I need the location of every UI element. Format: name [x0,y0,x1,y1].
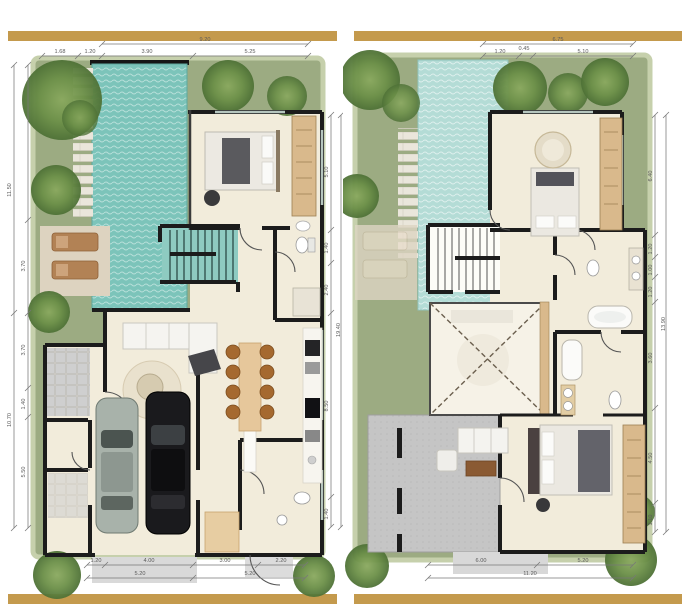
car-silver [96,398,138,533]
dim-label: 2.40 [324,285,330,296]
void-open-below [430,302,549,415]
dim-label: 3.60 [648,353,654,364]
dim-label: 5.20 [135,571,146,577]
bathtub [562,340,582,380]
dim-label: 10.70 [7,413,13,427]
dim-label: 19.40 [336,323,342,337]
dim-label: 3.70 [21,261,27,272]
dim-label: 3.00 [220,558,231,564]
headboard [528,428,540,494]
wardrobe [623,425,645,543]
sun-deck [40,226,110,296]
dim-label: 3.70 [21,345,27,356]
dim-label: 13.90 [661,317,667,331]
floor-plans-page: 1.68 1.20 3.90 5.25 9.20 1.20 4.00 3.00 … [0,0,686,606]
driveway-pavers [46,348,90,416]
dim-label: 1.20 [648,244,654,255]
sun-deck-below [355,225,417,300]
dim-label: 5.20 [245,571,256,577]
kitchen [303,328,322,483]
dim-label: 1.40 [21,399,27,410]
dim-label: 5.10 [324,167,330,178]
upper-floor-plan: 1.20 0.45 5.10 6.75 6.00 5.20 11.20 6.40… [343,0,686,606]
toilet [609,391,621,409]
dim-label: 1.00 [648,265,654,276]
dim-label: 3.90 [142,49,153,55]
sun-lounger [52,261,98,279]
dim-label: 1.10 [648,515,654,526]
dim-label: 1.20 [648,287,654,298]
dim-label: 6.75 [553,37,564,43]
ground-floor-plan: 1.68 1.20 3.90 5.25 9.20 1.20 4.00 3.00 … [0,0,343,606]
dim-label: 8.50 [324,401,330,412]
wardrobe [292,116,316,231]
dim-label: 11.20 [523,571,537,577]
dim-label: 1.40 [324,509,330,520]
dim-label: 5.10 [578,49,589,55]
dim-label: 1.20 [495,49,506,55]
staircase [162,228,238,284]
dim-label: 1.40 [324,243,330,254]
dim-label: 5.25 [245,49,256,55]
entry-mat [205,512,239,552]
dim-label: 6.40 [648,171,654,182]
dim-label: 5.20 [578,558,589,564]
dim-label: 1.20 [85,49,96,55]
dim-label: 6.00 [476,558,487,564]
dim-label: 1.20 [91,558,102,564]
car-black [146,392,190,534]
dim-label: 11.50 [7,183,13,197]
sun-lounger [52,233,98,251]
dim-label: 4.00 [144,558,155,564]
outdoor-armchair [437,450,457,471]
dim-label: 5.50 [21,467,27,478]
dim-label: 2.20 [276,558,287,564]
dim-label: 4.50 [648,453,654,464]
wardrobe [600,118,622,230]
dim-label: 9.20 [200,37,211,43]
storage-pavers [48,473,88,518]
sink [296,221,310,231]
dim-label: 0.45 [519,46,530,52]
outdoor-sofa [458,428,508,453]
dim-label: 1.68 [55,49,66,55]
outdoor-table [466,461,496,476]
dining-table [239,343,261,431]
